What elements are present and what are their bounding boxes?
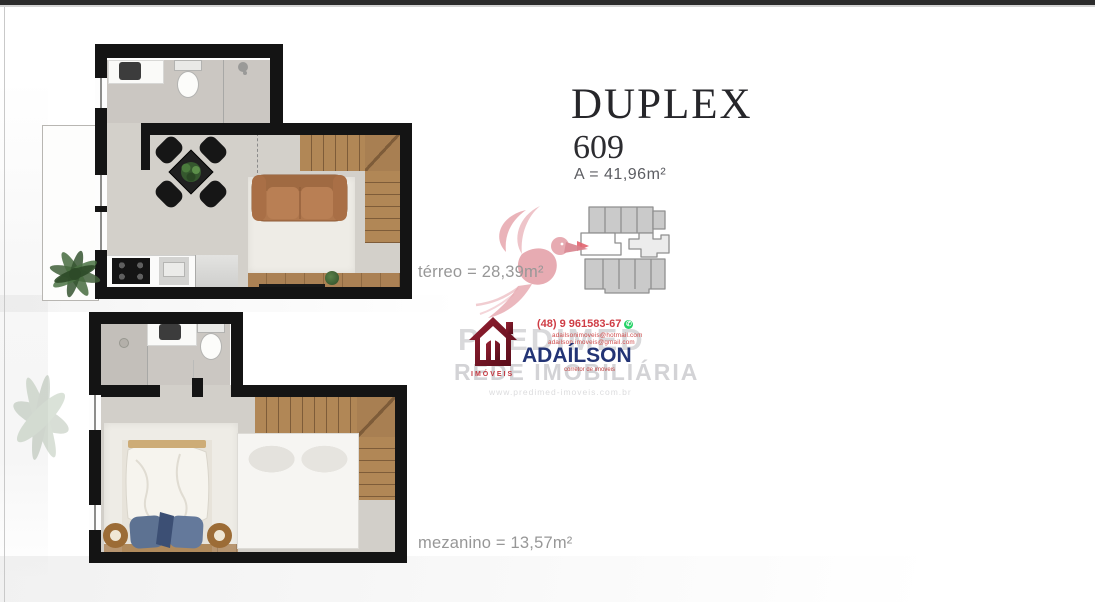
mezanino-area-label: mezanino = 13,57m² — [418, 534, 572, 553]
wall-segment — [270, 44, 283, 135]
top-border-bar — [0, 0, 1095, 7]
plant-icon — [45, 248, 105, 300]
wall-segment — [141, 123, 150, 170]
refrigerator — [195, 255, 238, 287]
plan-title: DUPLEX — [571, 80, 753, 129]
building-keyplan — [575, 197, 693, 297]
shower-drain — [119, 338, 129, 348]
wall-segment — [89, 312, 101, 395]
shower-area — [101, 324, 147, 385]
wall-segment — [400, 123, 412, 299]
phone-number: (48) 9 961583-67✆ — [537, 318, 633, 330]
staircase-winder — [357, 397, 395, 437]
floorplan-mezanino — [35, 300, 415, 575]
wardrobe — [237, 433, 359, 549]
sofa-icon — [251, 171, 348, 225]
wall-segment — [192, 378, 203, 397]
cooktop — [112, 258, 150, 284]
window — [95, 78, 107, 108]
agency-house-logo-icon — [466, 314, 520, 372]
toilet — [197, 322, 223, 360]
bathroom-sink — [119, 62, 141, 80]
dining-set-icon — [153, 134, 229, 210]
bed-icon — [122, 440, 212, 552]
logo-caption: IMÓVEIS — [471, 371, 514, 378]
left-border-line — [4, 7, 5, 602]
toilet — [174, 60, 200, 98]
window — [89, 505, 101, 530]
pouf — [103, 523, 128, 548]
total-area-label: A = 41,96m² — [574, 166, 666, 184]
wall-segment — [89, 552, 407, 563]
agent-name: ADAÍLSON — [522, 344, 632, 368]
wall-segment — [95, 108, 107, 175]
wall-segment — [395, 385, 407, 563]
staircase-winder — [365, 133, 400, 171]
plant-icon — [325, 271, 339, 285]
wall-segment — [141, 123, 412, 135]
floorplan-sheet: térreo = 28,39m² — [0, 0, 1095, 602]
unit-number: 609 — [573, 129, 624, 167]
staircase-run — [365, 171, 400, 243]
window — [95, 175, 107, 250]
pouf — [207, 523, 232, 548]
stair-void-line — [257, 133, 258, 173]
shower-partition — [223, 60, 224, 123]
bathroom-sink — [159, 324, 181, 340]
terreo-area-label: térreo = 28,39m² — [418, 263, 544, 282]
kitchen-sink — [159, 257, 189, 285]
wall-segment — [95, 44, 107, 78]
floorplan-terreo — [35, 38, 415, 303]
wall-segment — [95, 44, 283, 58]
wall-segment — [89, 312, 243, 324]
wall-segment — [95, 287, 412, 299]
agent-role: corretor de imóveis — [564, 367, 615, 373]
staircase-run — [300, 133, 365, 171]
contact-line-1: adailsonimoveis@hotmail.com — [552, 332, 643, 339]
window-mullion — [95, 206, 107, 212]
plant-icon — [8, 370, 74, 465]
window — [89, 395, 101, 430]
staircase-run — [357, 437, 395, 500]
shower-head-icon — [238, 62, 248, 72]
whatsapp-icon: ✆ — [624, 320, 633, 329]
staircase-run — [255, 397, 357, 437]
wall-segment — [89, 430, 101, 505]
wall-segment — [89, 530, 101, 552]
wall-segment — [243, 385, 407, 397]
website-url: www.predimed-imoveis.com.br — [489, 387, 632, 397]
wall-segment — [231, 312, 243, 397]
